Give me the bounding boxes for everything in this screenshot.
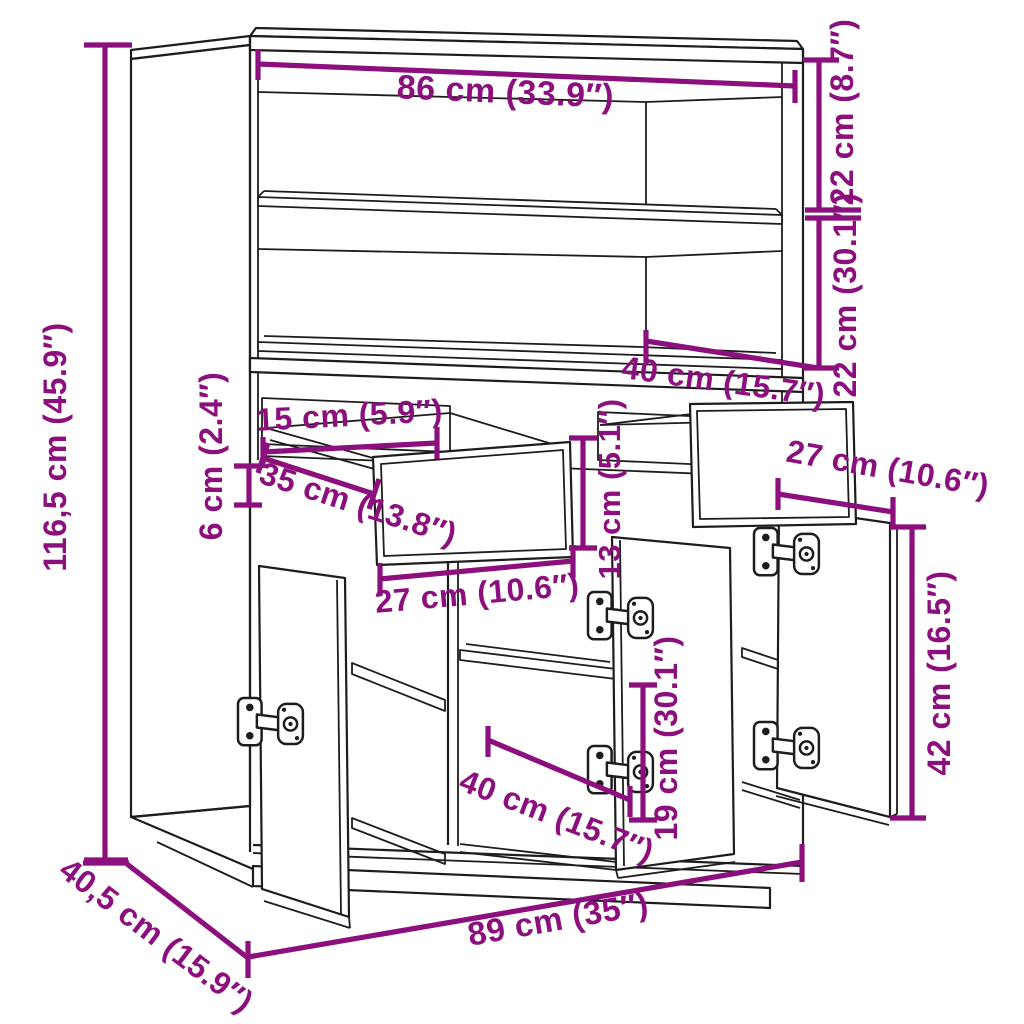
dimension-label-drawer-front-height: 13 cm (5.1″)	[592, 398, 627, 579]
dimension-label-drawer-rail-height: 6 cm (2.4″)	[193, 372, 229, 540]
left-door-open	[259, 566, 350, 928]
dimension-label-door-height: 42 cm (16.5″)	[921, 570, 957, 775]
dimension-label-second-compartment-height: 22 cm (30.1″)	[827, 192, 863, 397]
left-compartment-shelves	[352, 663, 445, 864]
dimension-drawer-rail-height: 6 cm (2.4″)	[193, 372, 262, 540]
dimension-drawer-front-height: 13 cm (5.1″)	[569, 398, 627, 579]
dimension-hutch-depth: 40 cm (15.7″)	[620, 330, 828, 413]
dimension-top-compartment-height: 22 cm (8.7″)	[803, 19, 861, 210]
hutch-middle-shelf	[258, 191, 782, 224]
diagram-canvas: 86 cm (33.9″) 22 cm (8.7″) 22 cm (30.1″)…	[0, 0, 1024, 1024]
dimension-label-shelf-clearance: 19 cm (30.1″)	[648, 635, 684, 840]
dimension-door-height: 42 cm (16.5″)	[890, 527, 957, 818]
dimension-label-top-compartment-height: 22 cm (8.7″)	[824, 19, 860, 206]
left-side-panel	[131, 36, 250, 817]
hutch-top-board	[250, 28, 803, 63]
dimension-label-top-width: 86 cm (33.9″)	[396, 68, 615, 115]
hutch-second-compartment	[258, 249, 782, 346]
dimension-overall-height: 116,5 cm (45.9″)	[37, 45, 132, 860]
furniture-dimension-diagram: 86 cm (33.9″) 22 cm (8.7″) 22 cm (30.1″)…	[0, 0, 1024, 1024]
dimension-label-overall-height: 116,5 cm (45.9″)	[37, 322, 73, 571]
